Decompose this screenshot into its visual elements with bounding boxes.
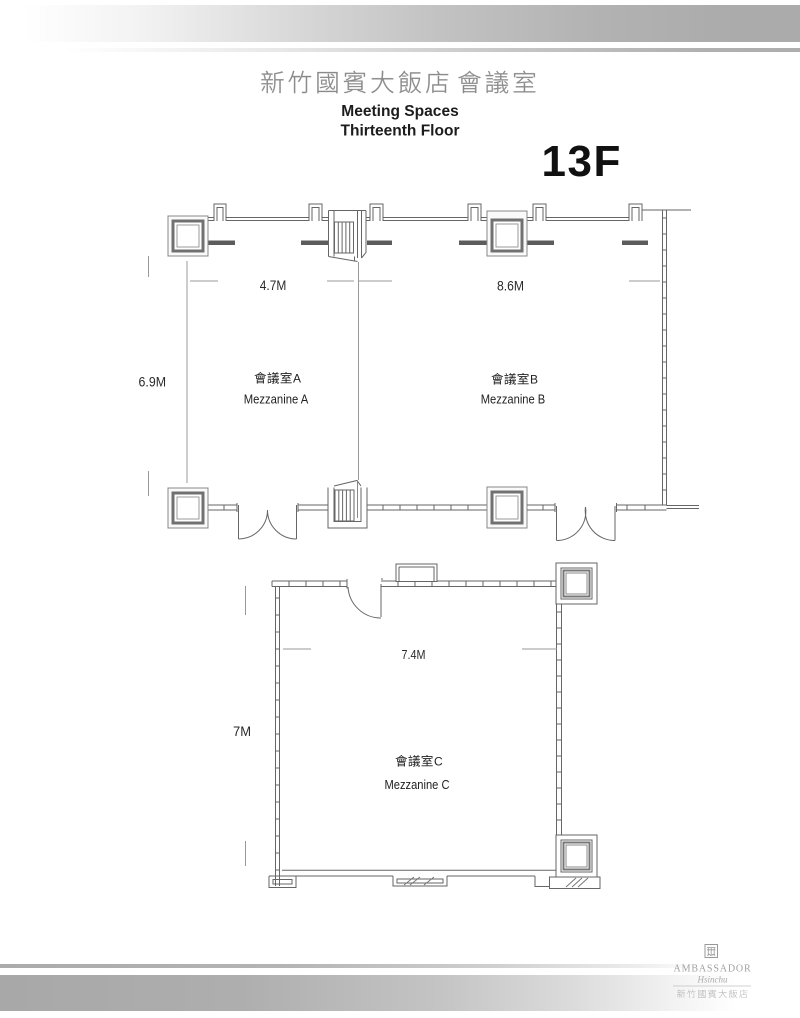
- svg-text:C: C: [434, 755, 443, 769]
- svg-text:Mezzanine B: Mezzanine B: [481, 392, 546, 407]
- svg-text:Meeting Spaces: Meeting Spaces: [341, 103, 459, 120]
- svg-text:Thirteenth Floor: Thirteenth Floor: [341, 123, 460, 140]
- svg-text:Mezzanine A: Mezzanine A: [244, 392, 309, 407]
- svg-text:Mezzanine C: Mezzanine C: [385, 777, 450, 792]
- svg-text:6.9M: 6.9M: [139, 375, 167, 390]
- svg-text:7.4M: 7.4M: [402, 647, 426, 662]
- svg-text:B: B: [530, 373, 538, 387]
- svg-text:7M: 7M: [233, 724, 251, 739]
- svg-text:A: A: [293, 372, 301, 386]
- svg-text:8.6M: 8.6M: [497, 279, 524, 294]
- svg-text:Hsinchu: Hsinchu: [697, 975, 728, 985]
- svg-text:4.7M: 4.7M: [260, 278, 287, 293]
- svg-text:AMBASSADOR: AMBASSADOR: [674, 963, 752, 975]
- svg-text:13F: 13F: [542, 137, 622, 186]
